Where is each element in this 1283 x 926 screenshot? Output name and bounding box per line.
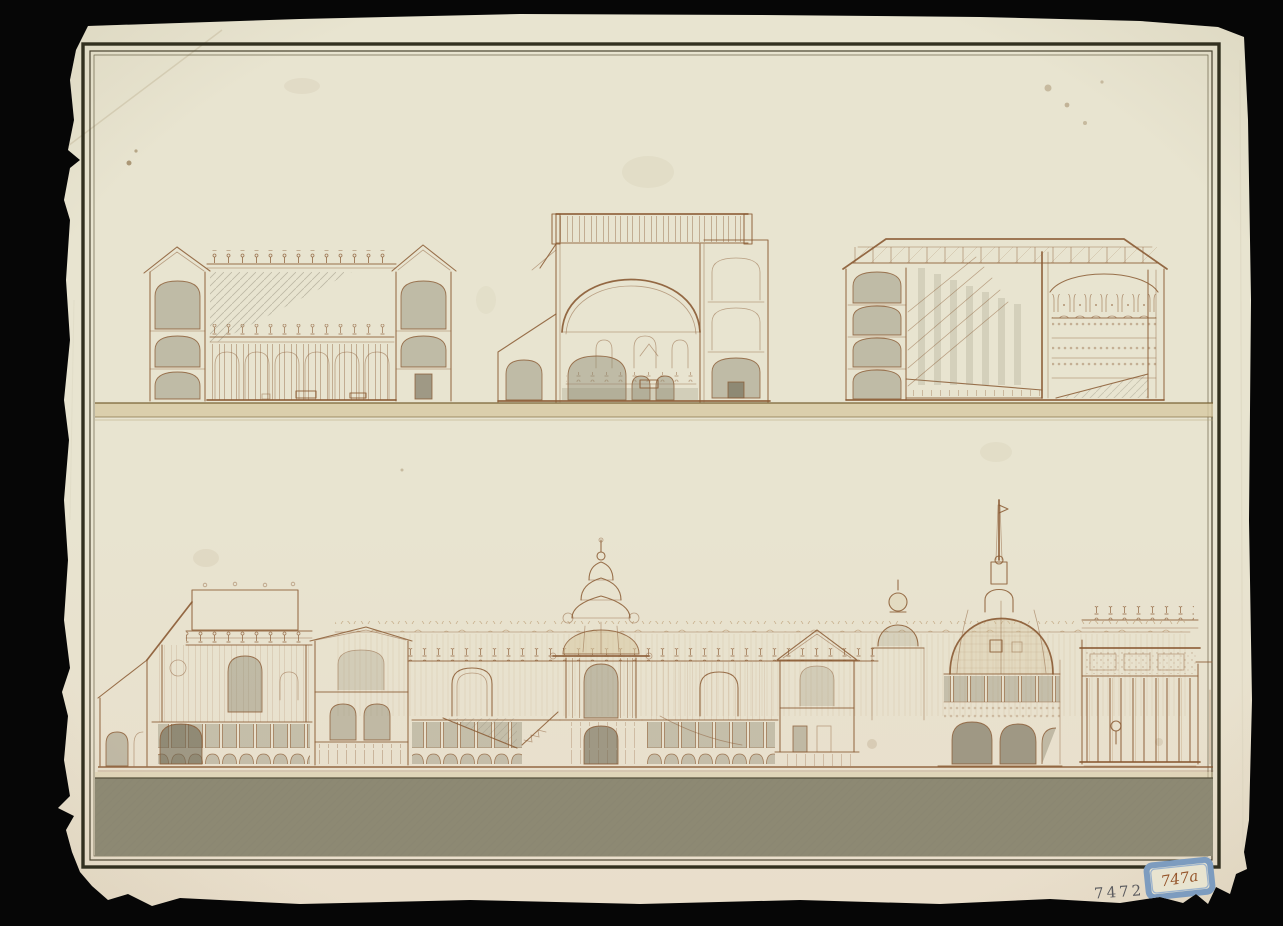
photograph-of-architectural-drawing: 7472 747a <box>0 0 1283 926</box>
stacked-vaults <box>848 268 906 400</box>
ground-strip <box>95 772 1213 778</box>
collection-label: 747a <box>1146 859 1213 898</box>
terrain-band <box>95 778 1213 856</box>
gallery-east <box>642 662 778 764</box>
inventory-stamp-number: 7472 <box>1094 881 1145 902</box>
roof-trusses <box>852 247 1158 263</box>
